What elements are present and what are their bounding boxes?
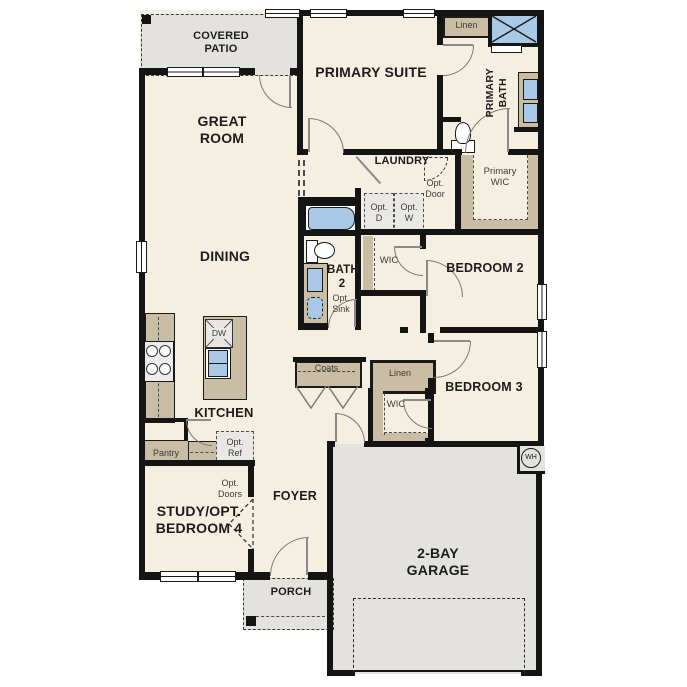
- bedroom3-door-leaf: [434, 340, 470, 342]
- opt-doors-label: Opt. Doors: [211, 478, 249, 500]
- bedrooms-top-wall: [355, 229, 544, 235]
- wic2-shelving: [363, 236, 373, 293]
- primary-wic-top-wall: [508, 149, 544, 155]
- window: [403, 9, 435, 18]
- porch-label: PORCH: [263, 586, 319, 599]
- bedroom2-label: BEDROOM 2: [435, 261, 535, 276]
- opt-washer-label: Opt. W: [398, 202, 420, 224]
- shower-door: [491, 45, 522, 53]
- opt-door-label: Opt. Door: [418, 178, 452, 200]
- wic2-bottom-wall: [355, 290, 426, 296]
- bed2-bed3-wall: [440, 327, 544, 333]
- bath2-label: BATH 2: [327, 263, 357, 291]
- shower-icon: [488, 12, 541, 47]
- garage-door-dashed: [353, 598, 525, 673]
- pantry-wall: [140, 418, 188, 422]
- wic2-door-leaf: [394, 246, 422, 248]
- covered-patio-label: COVERED PATIO: [180, 30, 262, 57]
- opt-dryer-box: Opt. D: [364, 193, 394, 233]
- window: [203, 67, 240, 77]
- primary-bath-label: PRIMARY BATH: [484, 53, 510, 133]
- toilet-nook-wall: [443, 117, 461, 122]
- opt-sink-label: Opt. Sink: [325, 293, 357, 315]
- sink-basin-icon: [208, 350, 228, 364]
- tub-basin-icon: [308, 207, 355, 230]
- opt-sink-icon: [307, 297, 323, 319]
- primary-wic-label: Primary WIC: [474, 166, 526, 189]
- burner-icon: [159, 345, 171, 357]
- primary-linen-label: Linen: [443, 20, 490, 31]
- patio-door-leaf: [289, 75, 291, 107]
- bottom-wall-foyer: [254, 572, 270, 580]
- great-room-label: GREAT ROOM: [178, 113, 266, 147]
- laundry-label: LAUNDRY: [366, 155, 438, 168]
- bath2-sink-icon: [307, 268, 323, 292]
- dining-label: DINING: [194, 248, 256, 265]
- garage-wall-top: [327, 441, 335, 447]
- wic2-label: WIC: [375, 255, 403, 266]
- bedroom2-door-leaf: [426, 260, 428, 296]
- laundry-left-wall: [355, 188, 361, 235]
- foyer-label: FOYER: [263, 489, 327, 504]
- wic3-label: WIC: [382, 399, 410, 410]
- garage-wall-right: [536, 447, 542, 676]
- window: [136, 241, 147, 273]
- window: [160, 571, 198, 582]
- garage-label: 2-BAY GARAGE: [400, 545, 476, 579]
- hall-closet-top-wall: [293, 357, 366, 362]
- bath2-bottom-wall: [298, 324, 328, 330]
- bath2-tub-wall: [302, 232, 360, 236]
- primary-suite-door-leaf: [308, 118, 310, 152]
- hall-linen-label: Linen: [372, 368, 428, 379]
- opt-ref-label: Opt. Ref: [222, 437, 248, 459]
- cased-opening-dashed: [303, 160, 305, 196]
- porch-inner-dashed-line: [256, 616, 330, 617]
- hall-wall: [297, 149, 308, 155]
- burner-icon: [146, 345, 158, 357]
- bath2-left-wall: [298, 197, 304, 330]
- opt-dryer-label: Opt. D: [368, 202, 390, 224]
- burner-icon: [146, 363, 158, 375]
- window: [537, 284, 547, 320]
- pantry-label: Pantry: [145, 448, 187, 459]
- wic3-dashed: [384, 432, 426, 433]
- garage-wall-top: [364, 441, 542, 447]
- garage-wall-left: [327, 441, 333, 676]
- cased-opening-dashed: [298, 160, 300, 196]
- coats-bifold-doors-icon: [296, 386, 358, 411]
- window: [537, 331, 547, 368]
- vanity-sink-icon: [523, 103, 538, 123]
- window: [198, 571, 236, 582]
- window: [265, 9, 300, 18]
- water-heater-icon: WH: [521, 448, 541, 468]
- kitchen-label: KITCHEN: [191, 405, 257, 421]
- toilet-icon: [314, 242, 335, 259]
- dishwasher-box: DW: [205, 319, 233, 348]
- study-label: STUDY/OPT. BEDROOM 4: [146, 503, 252, 537]
- window: [167, 67, 203, 77]
- coats-label: Coats: [296, 363, 357, 374]
- exterior-wall-left: [139, 68, 145, 580]
- patio-post: [142, 15, 151, 24]
- bedroom3-label: BEDROOM 3: [434, 380, 534, 395]
- bed2-bed3-wall: [400, 327, 408, 333]
- window: [310, 9, 347, 18]
- kitchen-study-wall: [139, 460, 255, 466]
- primary-bath-door-leaf: [443, 44, 473, 46]
- vanity-sink-icon: [523, 79, 538, 100]
- bath2-top-wall: [298, 197, 360, 203]
- porch-post: [246, 616, 256, 626]
- primary-suite-left-wall: [297, 14, 303, 155]
- garage-entry-door-leaf: [335, 413, 337, 442]
- sink-basin-icon: [208, 363, 228, 377]
- burner-icon: [159, 363, 171, 375]
- primary-wic-left-wall: [455, 149, 461, 235]
- water-heater-label: WH: [525, 454, 537, 462]
- floor-plan: DW Opt. Ref: [0, 0, 687, 687]
- primary-suite-label: PRIMARY SUITE: [315, 64, 427, 81]
- front-door-leaf: [306, 537, 308, 575]
- dishwasher-label: DW: [211, 328, 227, 338]
- primary-bath-divider-wall: [437, 75, 443, 155]
- bottom-wall-foyer: [308, 572, 333, 580]
